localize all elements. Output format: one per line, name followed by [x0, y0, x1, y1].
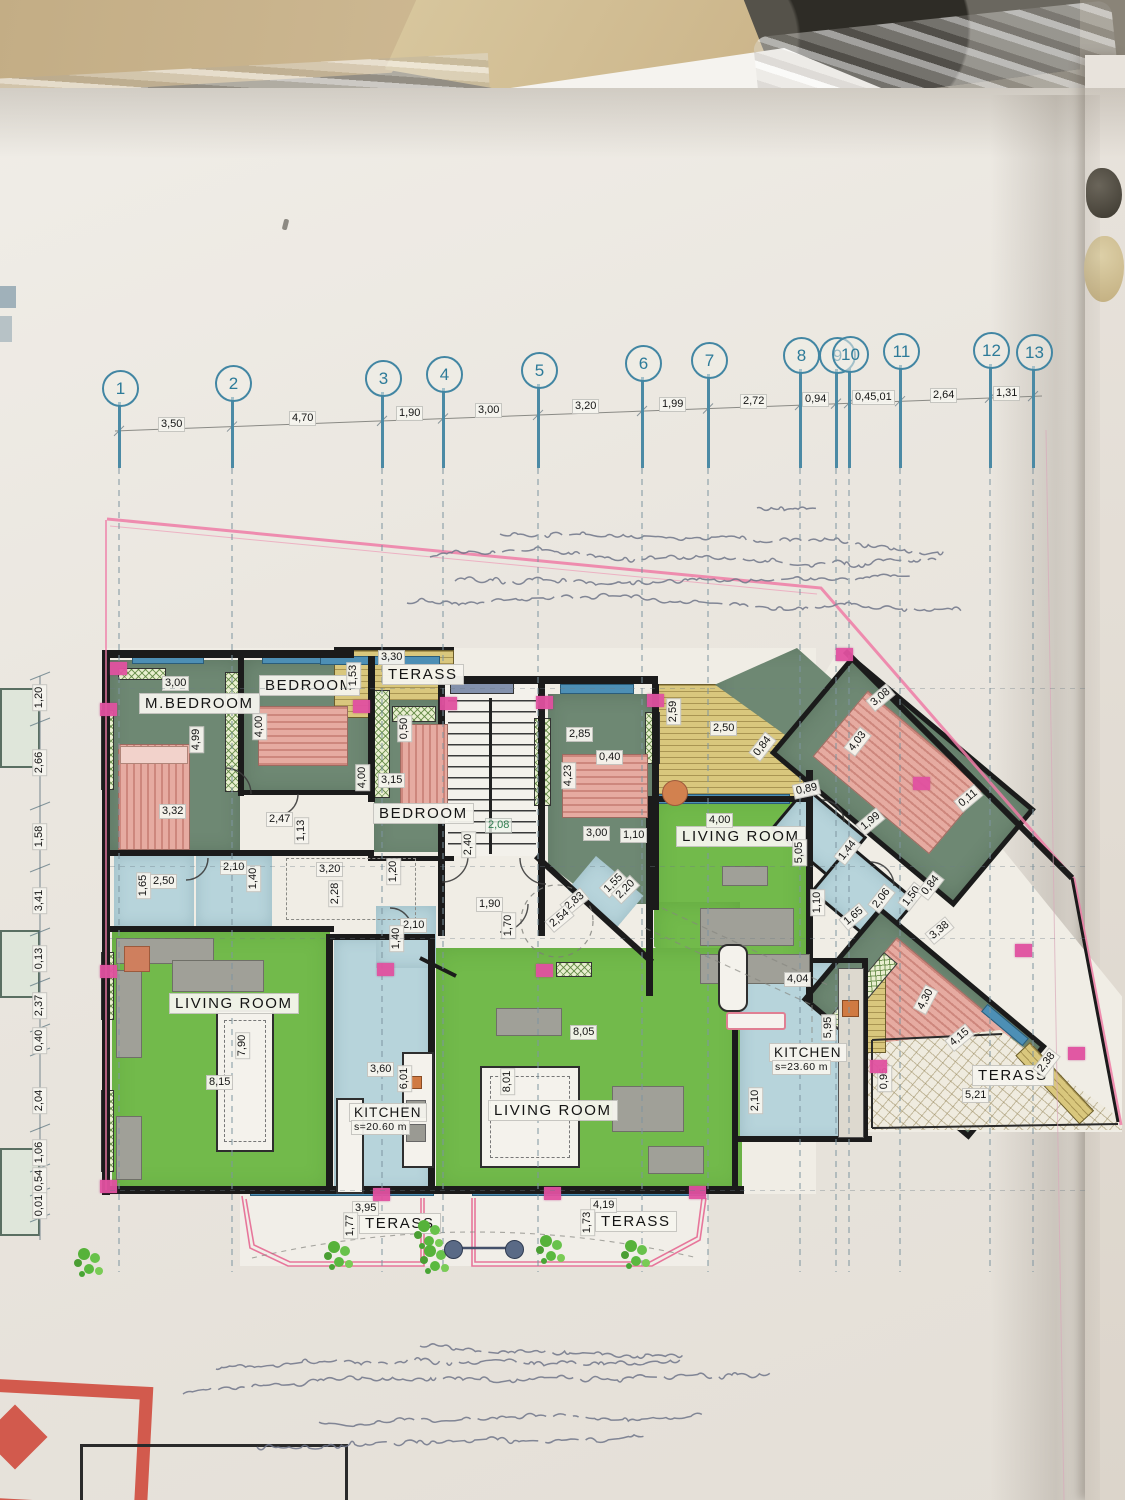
- room-label: BEDROOM: [373, 803, 474, 824]
- grid-bubble: 2: [215, 365, 252, 402]
- wall-marker: [100, 1180, 117, 1193]
- grid-line-stem: [231, 397, 234, 468]
- plant: [78, 1248, 90, 1260]
- dim-label: 3,60: [367, 1062, 394, 1077]
- dim-label: 4,30: [913, 984, 939, 1015]
- dashed-axis-line: [110, 866, 1090, 867]
- room-label: M.BEDROOM: [139, 693, 260, 714]
- chain-dim-label: 2,66: [32, 749, 47, 776]
- dim-label: 1,90: [476, 897, 503, 912]
- dim-label: 4,04: [784, 972, 811, 987]
- dim-label: 2,40: [461, 831, 476, 858]
- dashed-axis-line: [110, 938, 1090, 939]
- chain-dim-label: 0,54: [32, 1167, 47, 1194]
- dim-label: 1,70: [501, 912, 516, 939]
- grid-line-stem: [442, 388, 445, 468]
- room-area-label: s=20.60 m: [351, 1120, 410, 1135]
- grid-line-dashed: [989, 468, 991, 1272]
- grid-line-stem: [835, 369, 838, 468]
- wall-marker: [100, 703, 117, 716]
- dim-label: 1,10: [620, 828, 647, 843]
- dim-label: 0,11: [953, 784, 983, 813]
- dim-label: 1,73: [580, 1209, 595, 1236]
- room-label: LIVING ROOM: [488, 1100, 618, 1121]
- room-label: TERASS: [595, 1211, 677, 1232]
- dashed-axis-line: [110, 688, 1090, 689]
- dim-label: 8,15: [206, 1075, 233, 1090]
- dim-label: 0,84: [748, 731, 777, 762]
- wall-marker: [836, 648, 853, 661]
- dim-label: 5,95: [821, 1014, 836, 1041]
- dim-label: 6,01: [397, 1065, 412, 1092]
- room-label: TERASS: [382, 664, 464, 685]
- grid-line-dashed: [381, 468, 383, 1272]
- dim-label: 1,10: [810, 889, 825, 916]
- dim-label: 2,28: [328, 880, 343, 907]
- dim-label: 7,90: [235, 1032, 250, 1059]
- dim-label: 2,50: [150, 874, 177, 889]
- wall-marker: [544, 1187, 561, 1200]
- chain-dim-label: 2,37: [32, 992, 47, 1019]
- plant: [424, 1245, 436, 1257]
- dim-label: 5,21: [962, 1088, 989, 1103]
- chain-dim-label: 0,01: [32, 1192, 47, 1219]
- dim-label: 1,65: [838, 902, 869, 931]
- dim-label: 1,53: [346, 662, 361, 689]
- plant: [540, 1235, 552, 1247]
- dim-label: 0,50: [397, 715, 412, 742]
- chain-dim-label: 1,31: [993, 386, 1020, 401]
- chain-dim-label: 1,20: [32, 684, 47, 711]
- chain-dim-label: 2,72: [740, 394, 767, 409]
- dim-label: 2,10: [220, 860, 247, 875]
- grid-bubble: 12: [973, 332, 1010, 369]
- dim-label: 8,01: [500, 1068, 515, 1095]
- room-label: BEDROOM: [259, 675, 360, 696]
- plant: [625, 1240, 637, 1252]
- grid-bubble: 8: [783, 337, 820, 374]
- chain-dim-label: 3,50: [158, 417, 185, 432]
- room-label: LIVING ROOM: [676, 826, 806, 847]
- chain-dim-label: 1,99: [659, 397, 686, 412]
- wall-marker: [536, 964, 553, 977]
- grid-line-dashed: [537, 468, 539, 1272]
- wall-marker: [536, 696, 553, 709]
- dim-label: 1,20: [386, 858, 401, 885]
- dim-label: 2,06: [867, 883, 896, 914]
- grid-line-dashed: [118, 468, 120, 1272]
- grid-line-dashed: [442, 468, 444, 1272]
- wall-marker: [913, 777, 930, 790]
- grid-line-stem: [799, 369, 802, 468]
- grid-line-stem: [381, 392, 384, 468]
- dim-label: 4,23: [561, 762, 576, 789]
- dim-label: 0,89: [792, 779, 822, 799]
- chain-dim-label: 3,41: [32, 887, 47, 914]
- dim-label: 2,10: [748, 1087, 763, 1114]
- photo-of-floor-plan: 123456789101112133,504,701,903,003,201,9…: [0, 0, 1125, 1500]
- dim-label: 3,32: [159, 804, 186, 819]
- wall-marker: [440, 697, 457, 710]
- chain-dim-label: 0,45,01: [852, 390, 895, 405]
- dim-label: 4,00: [355, 764, 370, 791]
- grid-line-dashed: [707, 468, 709, 1272]
- wall-marker: [110, 662, 127, 675]
- dim-label: 4,00: [706, 813, 733, 828]
- grid-bubble: 7: [691, 342, 728, 379]
- plant: [418, 1220, 430, 1232]
- dim-label: 4,00: [252, 713, 267, 740]
- wall-marker: [647, 694, 664, 707]
- wall-marker: [870, 1060, 887, 1073]
- grid-line-stem: [537, 384, 540, 468]
- grid-line-stem: [848, 368, 851, 468]
- grid-line-dashed: [899, 468, 901, 1272]
- grid-bubble: 3: [365, 360, 402, 397]
- dim-label: 3,38: [924, 916, 955, 945]
- grid-line-stem: [1032, 366, 1035, 468]
- grid-bubble: 11: [883, 333, 920, 370]
- grid-line-dashed: [835, 468, 837, 1272]
- generated-annotations: 123456789101112133,504,701,903,003,201,9…: [0, 0, 1125, 1500]
- dim-label: 3,00: [583, 826, 610, 841]
- chain-dim-label: 1,58: [32, 823, 47, 850]
- grid-line-stem: [989, 364, 992, 468]
- grid-line-stem: [899, 365, 902, 468]
- chain-dim-label: 2,04: [32, 1087, 47, 1114]
- dim-label: 3,20: [316, 862, 343, 877]
- grid-bubble: 13: [1016, 334, 1053, 371]
- chain-dim-label: 1,90: [396, 406, 423, 421]
- grid-bubble: 10: [832, 336, 869, 373]
- grid-line-dashed: [799, 468, 801, 1272]
- grid-line-stem: [641, 377, 644, 468]
- grid-line-stem: [118, 402, 121, 468]
- wall-marker: [100, 965, 117, 978]
- dim-label: 2,47: [266, 812, 293, 827]
- chain-dim-label: 3,20: [572, 399, 599, 414]
- chain-dim-label: 0,94: [802, 392, 829, 407]
- dim-label: 0,40: [596, 750, 623, 765]
- dim-label: 2,59: [666, 698, 681, 725]
- grid-line-dashed: [848, 468, 850, 1272]
- room-area-label: s=23.60 m: [772, 1060, 831, 1075]
- dim-label: 2,85: [566, 727, 593, 742]
- dashed-axis-line: [110, 1190, 1090, 1191]
- wall-marker: [1015, 944, 1032, 957]
- grid-bubble: 5: [521, 352, 558, 389]
- dim-label: 2,08: [485, 818, 512, 833]
- chain-dim-label: 0,40: [32, 1027, 47, 1054]
- column: [444, 1240, 463, 1259]
- chain-dim-label: 2,64: [930, 388, 957, 403]
- grid-line-dashed: [1032, 468, 1034, 1272]
- dim-label: 1,99: [855, 807, 886, 836]
- dim-label: 1,44: [833, 835, 862, 866]
- chain-dim-label: 0,13: [32, 945, 47, 972]
- wall-marker: [1068, 1047, 1085, 1060]
- grid-line-dashed: [641, 468, 643, 1272]
- dim-label: 4,99: [189, 726, 204, 753]
- dim-label: 3,30: [378, 650, 405, 665]
- grid-bubble: 1: [102, 370, 139, 407]
- dim-label: 4,15: [944, 1023, 975, 1052]
- grid-bubble: 4: [426, 356, 463, 393]
- dim-label: 8,05: [570, 1025, 597, 1040]
- chain-dim-label: 1,06: [32, 1139, 47, 1166]
- wall-marker: [353, 700, 370, 713]
- dim-label: 2,50: [710, 721, 737, 736]
- dim-label: 1,13: [294, 817, 309, 844]
- dim-label: 1,65: [136, 872, 151, 899]
- wall-marker: [377, 963, 394, 976]
- wall-marker: [689, 1186, 706, 1199]
- dim-label: 3,15: [378, 773, 405, 788]
- room-label: LIVING ROOM: [169, 993, 299, 1014]
- grid-bubble: 6: [625, 345, 662, 382]
- chain-dim-label: 3,00: [475, 403, 502, 418]
- grid-line-stem: [707, 374, 710, 468]
- plant: [328, 1241, 340, 1253]
- dim-label: 1,40: [246, 865, 261, 892]
- dim-label: 1,77: [343, 1212, 358, 1239]
- chain-dim-label: 4,70: [289, 411, 316, 426]
- column: [505, 1240, 524, 1259]
- dim-label: 5,05: [792, 839, 807, 866]
